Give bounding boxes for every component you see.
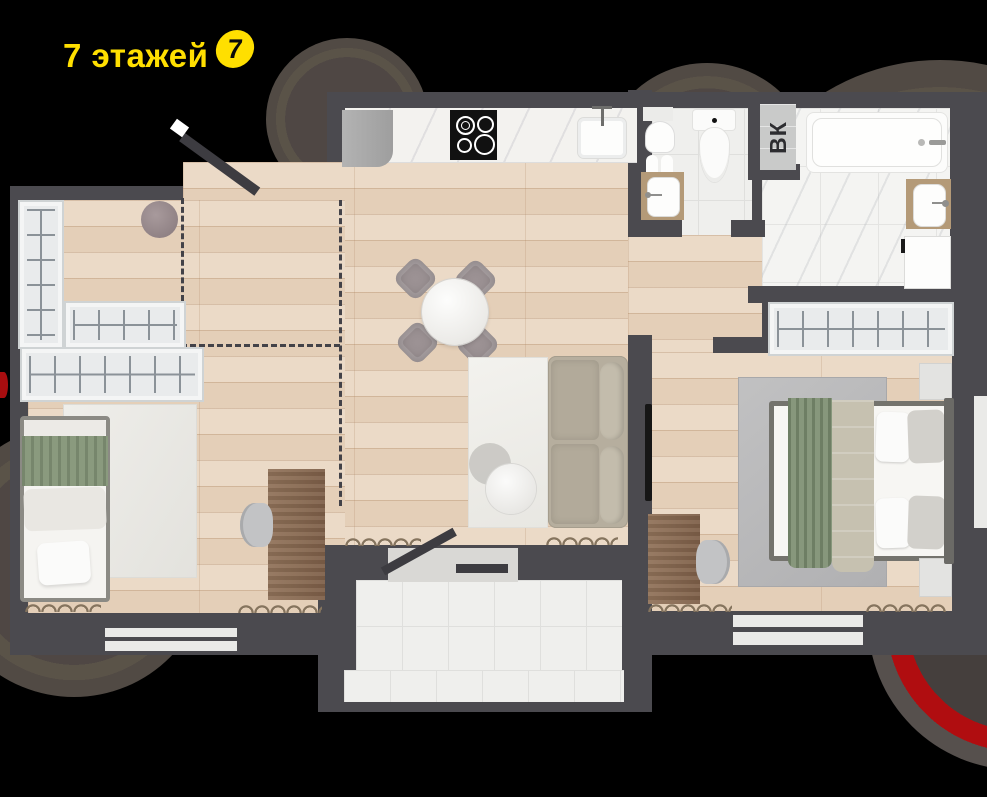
floor-count-badge: 7 (214, 30, 256, 68)
bathtub-drain-icon (918, 139, 925, 146)
radiator-kidsroom-right (238, 600, 322, 613)
wall-bedroom-door-stub (713, 337, 770, 353)
tv-icon (645, 404, 652, 501)
window-bedroom-inner (733, 632, 863, 645)
floors-header: 7 этажей 7 (63, 36, 254, 76)
dining-table (422, 279, 488, 345)
burner-icon (477, 116, 494, 133)
pouf (141, 201, 178, 238)
decor-red-wedge (0, 372, 8, 398)
floorplan-stage: 7 этажей 7 (0, 0, 987, 797)
burner-icon (474, 134, 495, 155)
wardrobe-hall-small (64, 301, 186, 349)
sofa-back-cushion (600, 362, 624, 440)
kids-desk-chair (240, 503, 273, 547)
sofa (548, 356, 628, 528)
toilet-bowl (700, 128, 729, 182)
sofa-back-cushion (600, 446, 624, 524)
bathtub (806, 112, 948, 173)
wardrobe-hall-wide (20, 347, 204, 402)
kids-bed-ruffle (24, 420, 106, 436)
zone-dash-kitchen-vertical (339, 200, 342, 506)
radiator-bedroom-right (866, 599, 946, 612)
radiator-bedroom-left (648, 599, 732, 612)
floor-balcony-step (344, 670, 624, 702)
vk-shaft: ВК (760, 104, 796, 170)
radiator-living-left (345, 533, 421, 546)
wc-faucet-stick (650, 194, 662, 196)
bath-appliance (904, 236, 951, 289)
floor-balcony (356, 580, 622, 672)
master-bed-beige-blanket (832, 400, 874, 572)
radiator-kidsroom-left (25, 599, 101, 612)
toilet (693, 110, 735, 182)
wc-sink (647, 177, 680, 217)
kids-bed-pillow-small (37, 540, 92, 586)
nightstand-top (919, 363, 952, 400)
wardrobe-hatch (29, 356, 195, 393)
kids-bed (20, 416, 110, 602)
burner-icon (457, 138, 472, 153)
bath-sink (913, 184, 946, 227)
master-bed-pillow (875, 497, 911, 548)
kitchen-faucet-icon (592, 106, 612, 128)
sofa-seat-cushion (551, 444, 599, 524)
window-kidsroom-outer (105, 628, 237, 637)
wardrobe-hall-vertical (18, 200, 64, 349)
master-bed-pillow-gray (907, 409, 946, 463)
wc-vanity (641, 172, 684, 220)
cooktop (450, 110, 497, 160)
wardrobe-hatch (73, 310, 177, 340)
master-bed-headboard (944, 398, 954, 564)
kids-bed-green-blanket (22, 436, 108, 486)
wall-wc-door-right (731, 220, 765, 237)
wc-shelf (643, 107, 673, 121)
bath-door-tick (901, 239, 905, 253)
window-bedroom-right (974, 396, 987, 528)
toilet-flush-button (712, 118, 717, 123)
kids-bed-pillow (23, 487, 106, 532)
wall-wc-door-left (628, 220, 682, 237)
window-kidsroom-inner (105, 641, 237, 651)
burner-icon (456, 116, 475, 135)
bathtub-faucet-icon (929, 140, 946, 145)
bedroom-desk-chair (696, 540, 730, 584)
balcony-side-window (456, 564, 508, 573)
fridge (342, 110, 393, 167)
wc-washbasin (646, 122, 674, 152)
kids-desk (268, 469, 325, 600)
coffee-table-marble (486, 464, 536, 514)
wardrobe-hatch (27, 209, 55, 340)
wardrobe-hatch (777, 311, 945, 347)
master-bed-pillow-gray (907, 495, 946, 549)
radiator-living-sofa (546, 532, 618, 545)
vk-label: ВК (765, 121, 792, 154)
window-bedroom-outer (733, 615, 863, 627)
faucet-stem (601, 106, 604, 126)
floors-title: 7 этажей (63, 36, 208, 76)
bedroom-desk (648, 514, 700, 604)
master-bed-green-blanket (788, 398, 832, 568)
faucet-bar (592, 106, 612, 109)
master-bed-pillow (875, 411, 911, 462)
bath-faucet-icon (942, 200, 949, 207)
sofa-seat-cushion (551, 360, 599, 440)
wardrobe-bedroom (768, 302, 954, 356)
bath-vanity (906, 179, 951, 229)
